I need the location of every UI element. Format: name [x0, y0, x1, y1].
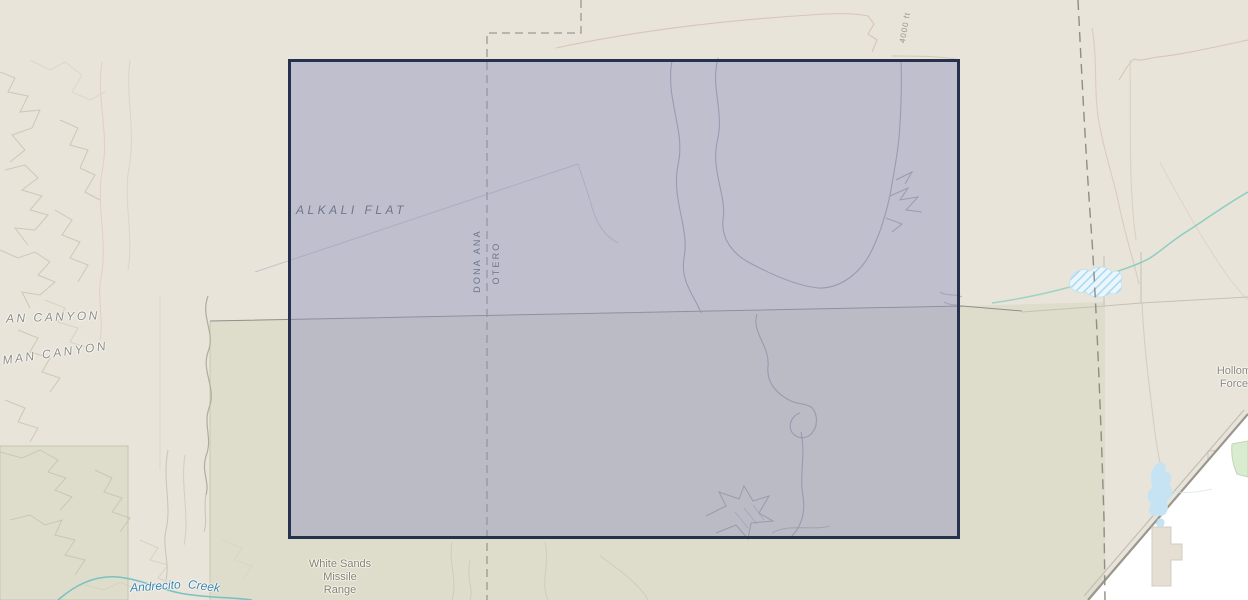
selection-rectangle[interactable] — [288, 59, 960, 539]
holloman-line1: Holloman Air — [1188, 365, 1248, 378]
creek-word1: Andrecito — [130, 577, 182, 595]
label-alkali-flat: ALKALI FLAT — [296, 203, 407, 217]
map-viewport[interactable]: ALKALI FLAT DONA ANA OTERO 4000 ft AN CA… — [0, 0, 1248, 600]
wsmr-line2: Missile — [298, 571, 382, 584]
label-county-otero: OTERO — [491, 203, 501, 323]
wsmr-line1: White Sands — [298, 558, 382, 571]
holloman-line2: Force Base — [1188, 378, 1248, 391]
label-holloman-afb: Holloman Air Force Base — [1188, 365, 1248, 391]
creek-word2: Creek — [187, 577, 220, 595]
wsmr-line3: Range — [298, 584, 382, 597]
label-white-sands-missile-range: White Sands Missile Range — [298, 558, 382, 597]
label-county-dona-ana: DONA ANA — [472, 201, 482, 321]
label-andrecito-creek: Andrecito Creek — [130, 579, 220, 593]
